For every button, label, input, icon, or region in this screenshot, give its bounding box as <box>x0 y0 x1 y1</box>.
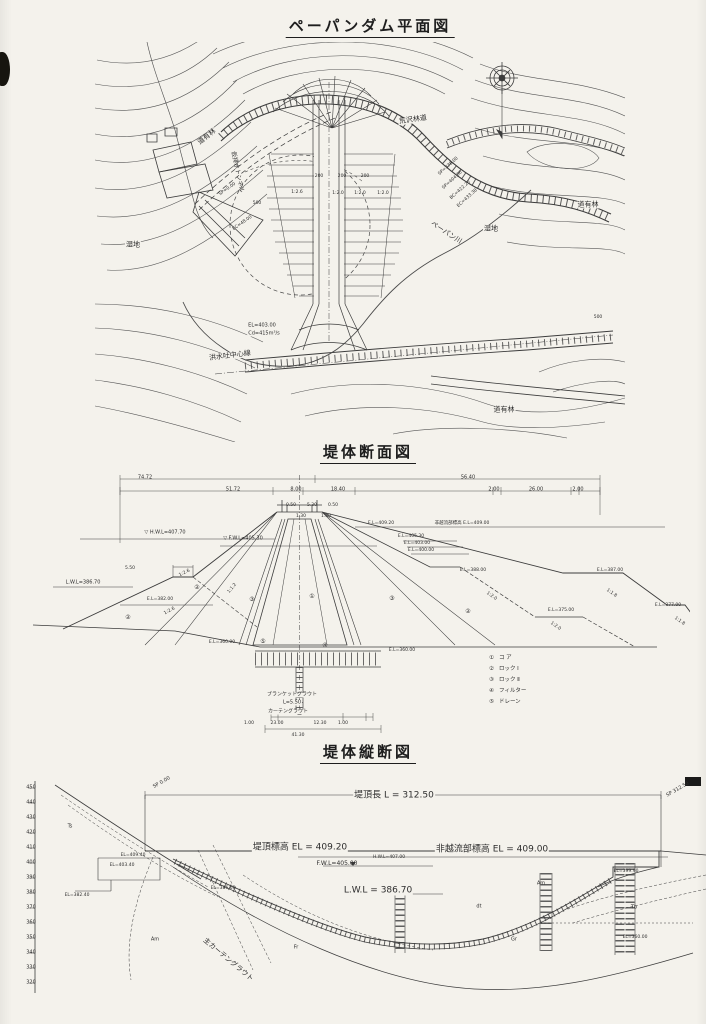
legend-item: ⑤ドレーン <box>489 700 526 706</box>
dimension-lines <box>120 475 600 733</box>
legend-item: ①コ ア <box>489 656 526 662</box>
crest-road <box>221 95 611 222</box>
ground-line <box>33 625 657 647</box>
core-zone <box>253 519 347 645</box>
branch-road <box>431 125 625 404</box>
legend-item: ③ロック Ⅱ <box>489 678 526 684</box>
scan-artifact <box>0 52 10 86</box>
cross-section-drawing <box>25 455 690 755</box>
outlet-works <box>147 112 335 256</box>
zone-legend: ①コ ア②ロック Ⅰ③ロック Ⅱ④フィルター⑤ドレーン <box>489 656 526 710</box>
legend-item: ④フィルター <box>489 689 526 695</box>
legend-item: ②ロック Ⅰ <box>489 667 526 673</box>
plan-view-title: ペーパンダム平面図 <box>286 15 455 38</box>
longitudinal-drawing <box>13 755 706 1020</box>
plan-view-drawing <box>95 42 625 442</box>
scan-mark <box>685 777 701 786</box>
level-lines <box>53 527 665 605</box>
compass-rose-icon <box>486 62 518 138</box>
drawing-sheet: ペーパンダム平面図 堤体断面図 堤体縦断図 <box>0 0 706 1024</box>
stilling-basin-road <box>215 331 613 374</box>
grout-columns <box>395 863 635 955</box>
